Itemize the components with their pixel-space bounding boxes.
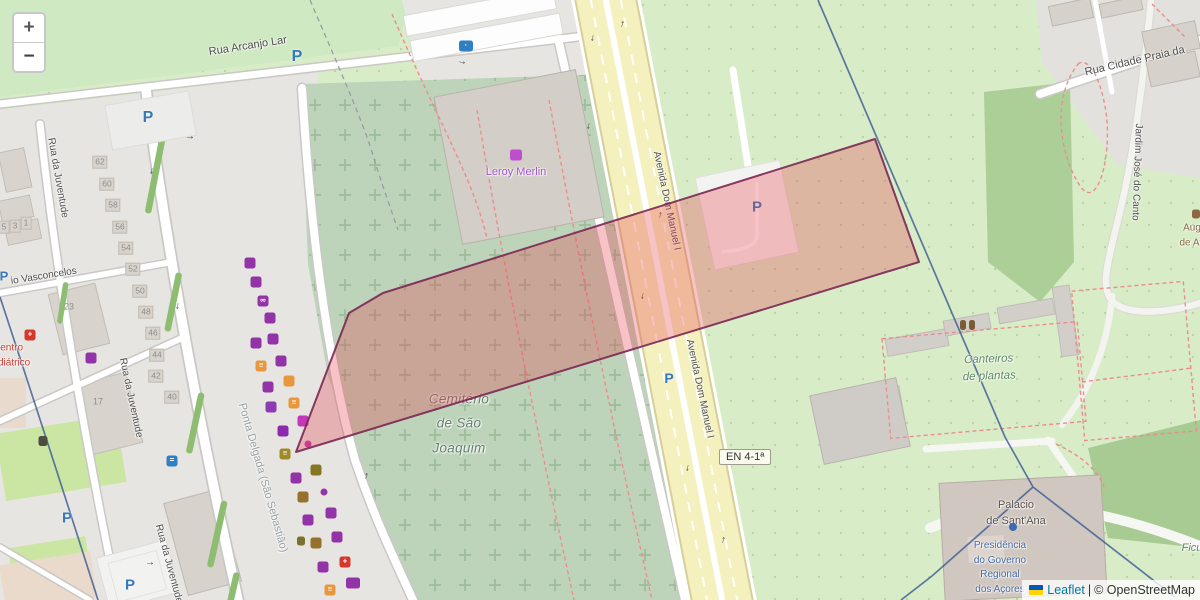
road-ref-badge: EN 4-1ª xyxy=(719,449,771,465)
leroy-merlin-building xyxy=(434,70,604,245)
basemap-geometry xyxy=(0,0,1200,600)
map-canvas[interactable]: Rua Arcanjo LarRua da JuventudeRua da Ju… xyxy=(0,0,1200,600)
attribution-bar: Leaflet|© OpenStreetMap xyxy=(1022,580,1200,600)
attribution-separator: | xyxy=(1088,583,1091,597)
zoom-in-button[interactable]: + xyxy=(14,14,44,43)
zoom-out-button[interactable]: − xyxy=(14,43,44,71)
zoom-control: + − xyxy=(12,12,46,73)
leaflet-link[interactable]: Leaflet xyxy=(1047,583,1085,597)
openstreetmap-link[interactable]: © OpenStreetMap xyxy=(1094,583,1195,597)
ukraine-flag-icon xyxy=(1029,585,1043,595)
